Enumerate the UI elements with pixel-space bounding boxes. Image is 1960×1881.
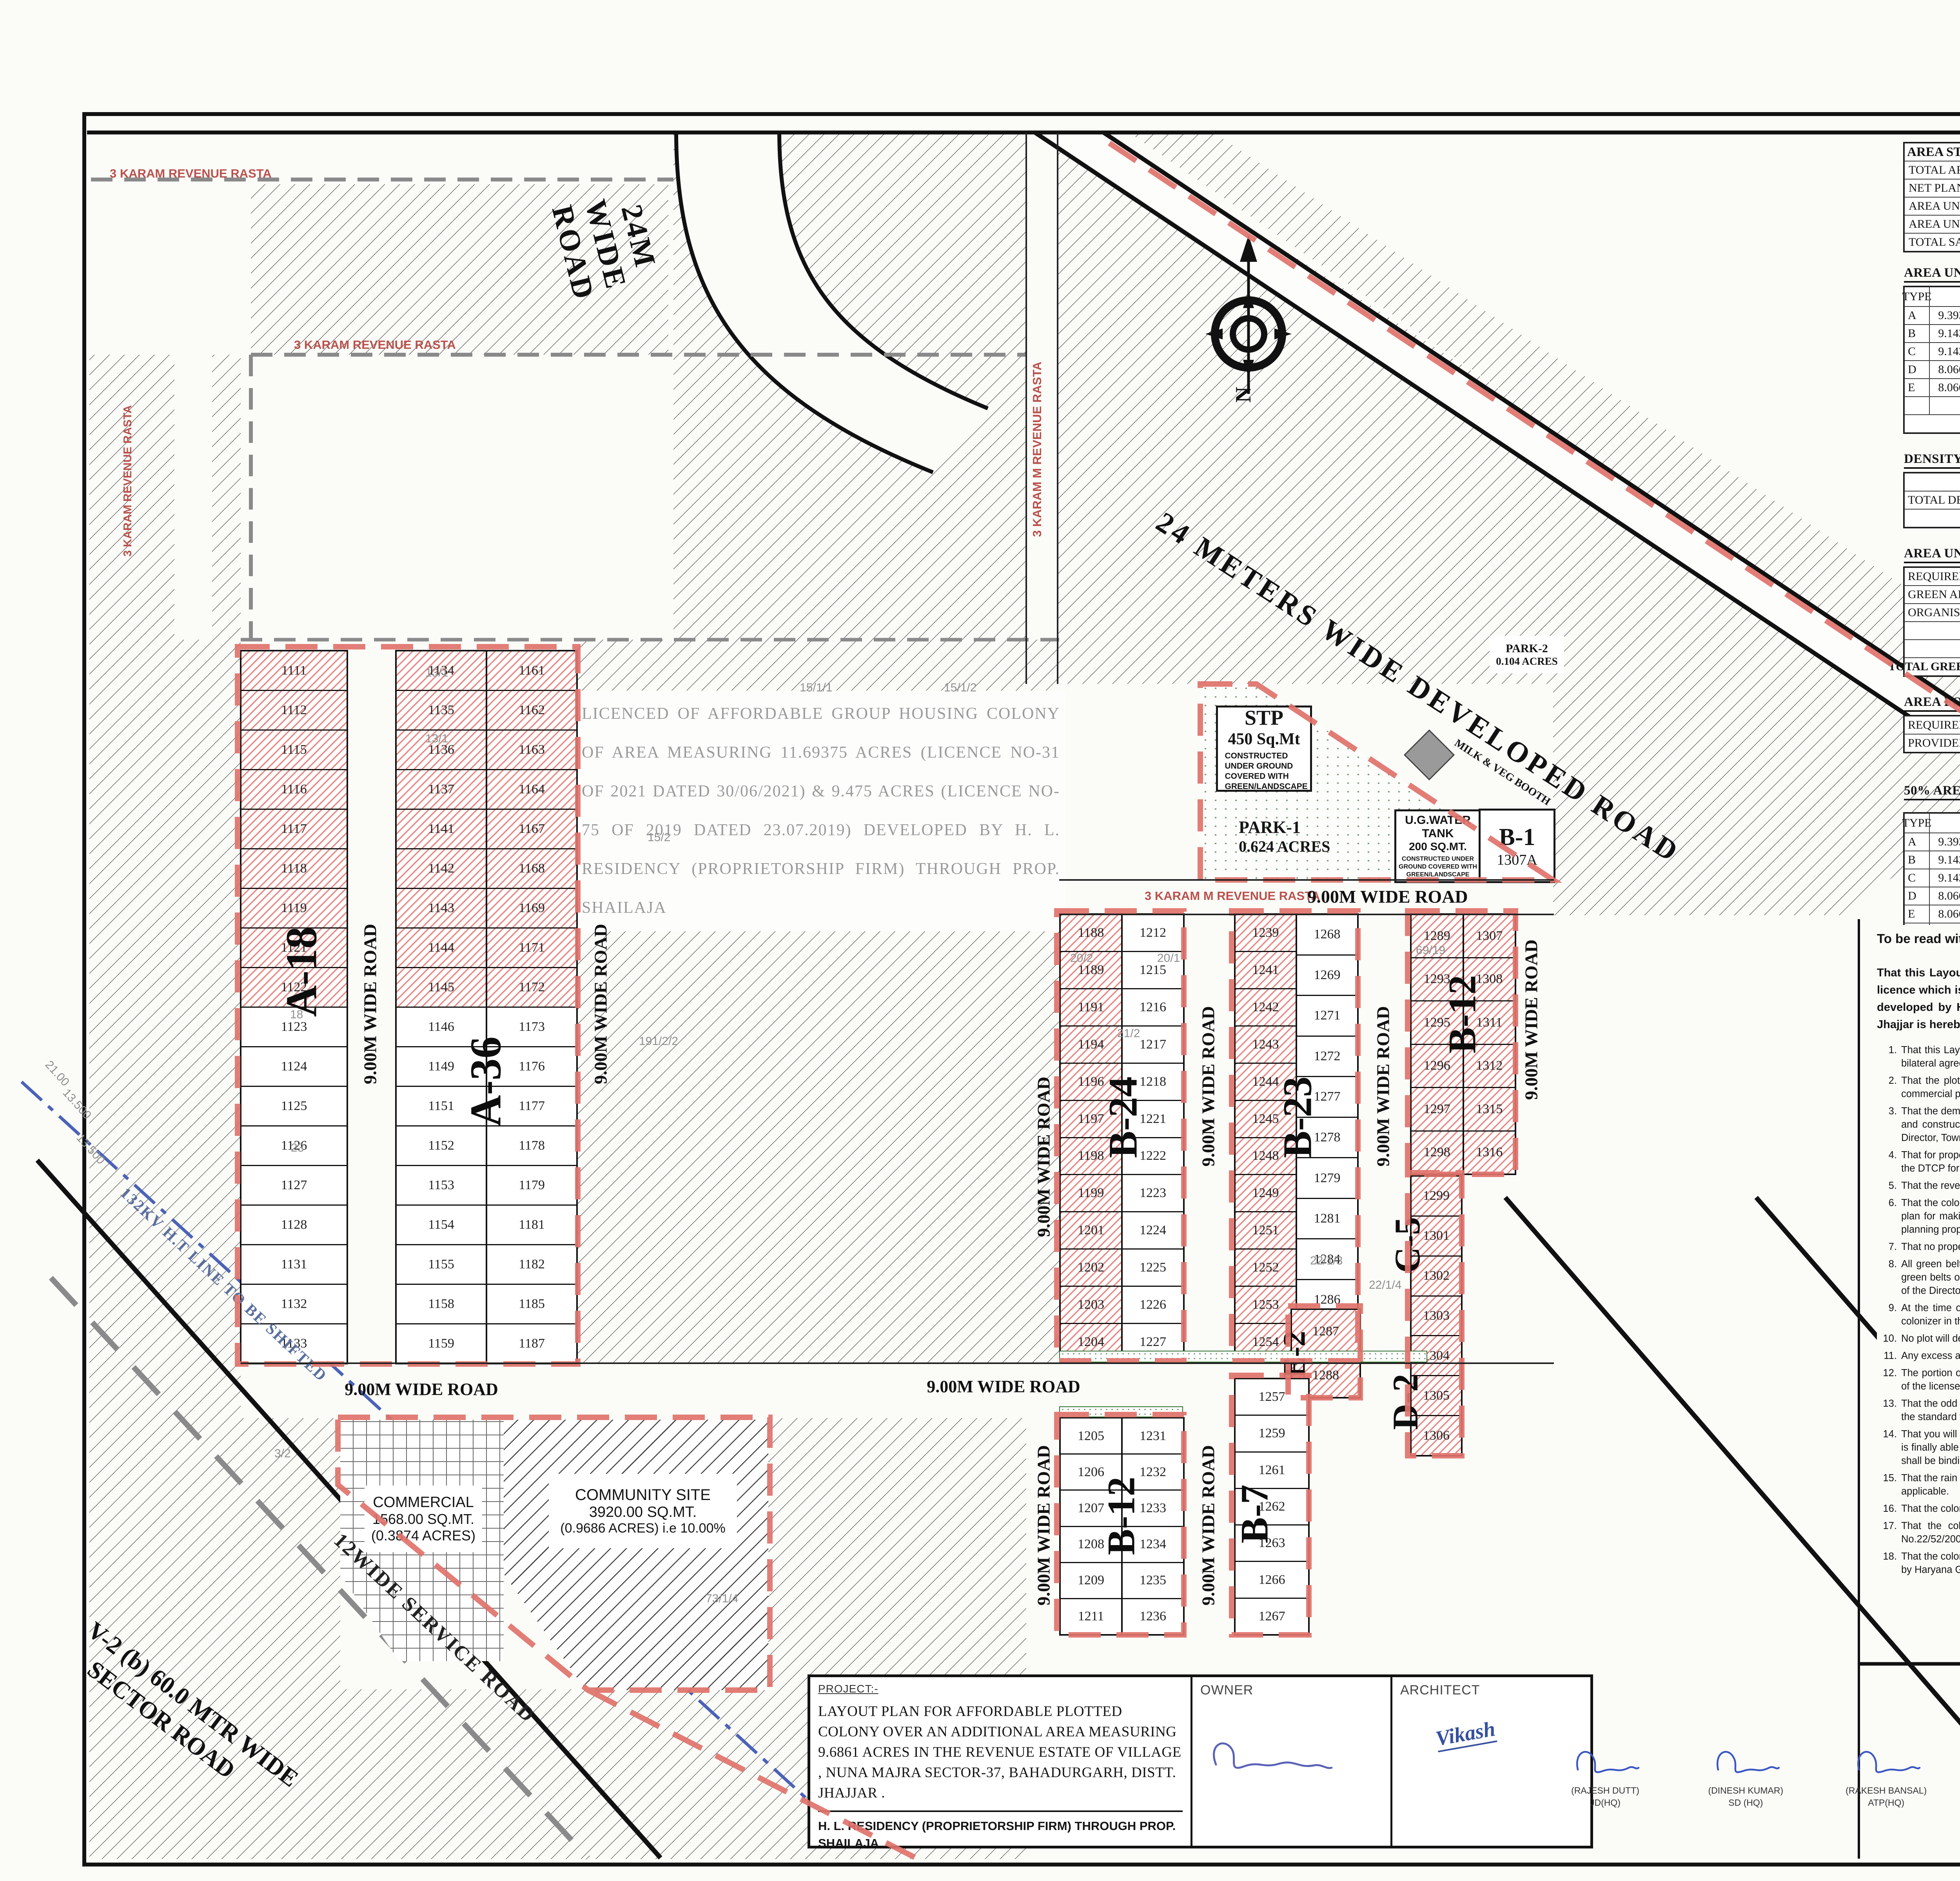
owner-section: OWNER: [1192, 1677, 1392, 1846]
stp-box: STP 450 Sq.Mt CONSTRUCTED UNDER GROUND C…: [1216, 706, 1312, 792]
survey-number: 13/1: [425, 732, 448, 746]
signatory-name: (RAKESH BANSAL): [1822, 1785, 1951, 1796]
road-label-horizontal: 9.00M WIDE ROAD: [1298, 886, 1478, 907]
plot-1116: 1116: [241, 770, 347, 810]
survey-number: 22/1/3: [1310, 1254, 1343, 1268]
road-label-horizontal: 9.00M WIDE ROAD: [331, 1379, 512, 1399]
plot-1279: 1279: [1297, 1158, 1357, 1199]
signatory-title: ATP(HQ): [1822, 1798, 1951, 1808]
block-label-d2: D-2: [1385, 1363, 1426, 1430]
signatory-title: SD (HQ): [1681, 1798, 1810, 1808]
plot-1124: 1124: [241, 1047, 347, 1087]
signatory: (DINESH KUMAR)SD (HQ): [1681, 1736, 1810, 1808]
condition-item: That the odd size plots are being approv…: [1900, 1397, 1960, 1424]
plot-1216: 1216: [1123, 989, 1183, 1027]
plot-1162: 1162: [487, 691, 576, 731]
plot-1202: 1202: [1061, 1250, 1121, 1287]
or-label: OR: [1904, 415, 1960, 433]
plot-1212: 1212: [1123, 915, 1183, 952]
density-title: DENSITY CALCULATION: [1904, 452, 1960, 469]
plot-1158: 1158: [397, 1285, 486, 1324]
compass-n-label: N: [1231, 387, 1256, 403]
community-site: [504, 1420, 768, 1690]
plot-1125: 1125: [241, 1087, 347, 1126]
table-cell: 9.143: [1929, 851, 1960, 869]
plot-1179: 1179: [487, 1166, 576, 1206]
block-label-a18: A-18: [277, 931, 327, 1017]
table-cell: 9.143: [1929, 343, 1960, 361]
plot-1268: 1268: [1297, 915, 1357, 956]
condition-item: That this Layout Plan shall be read in c…: [1900, 1043, 1960, 1070]
plot-1235: 1235: [1123, 1563, 1183, 1599]
project-section: PROJECT:- LAYOUT PLAN FOR AFFORDABLE PLO…: [810, 1677, 1192, 1846]
plot-1144: 1144: [397, 929, 486, 968]
plot-1154: 1154: [397, 1206, 486, 1245]
plot-1141: 1141: [397, 810, 486, 849]
area-under-plots-table: TYPE SIZE AREA TOTAL PLOTS TOTAL AREA A9…: [1903, 286, 1960, 434]
table-cell: TOTAL SALEBLE AREA: [1904, 233, 1960, 251]
block-label-c5: C-5: [1387, 1206, 1428, 1273]
plot-1118: 1118: [241, 849, 347, 889]
table-cell: 9.143: [1929, 325, 1960, 343]
table-cell: AREA UNDER PLOTS: [1904, 215, 1960, 233]
table-cell: NET PLANNED AREA FOR PLANNING: [1904, 179, 1960, 197]
table-cell: ORGANISED GREEN: [1904, 604, 1960, 622]
signature-squiggle: [1706, 1736, 1785, 1783]
title-block: PROJECT:- LAYOUT PLAN FOR AFFORDABLE PLO…: [808, 1674, 1593, 1848]
table-cell: AREA UNDER COMMERCIAL: [1904, 197, 1960, 215]
road-label-horizontal: 9.00M WIDE ROAD: [913, 1377, 1094, 1397]
table-cell: [1904, 640, 1960, 658]
plot-1163: 1163: [487, 731, 576, 770]
conditions-list: That this Layout Plan shall be read in c…: [1877, 1043, 1960, 1576]
block-label-b24: B-24: [1100, 1076, 1147, 1158]
signatories-row: (RAJESH DUTT)JD(HQ)(DINESH KUMAR)SD (HQ)…: [1541, 1736, 1960, 1808]
survey-number: 13.500: [74, 1132, 108, 1167]
plot-1315: 1315: [1464, 1088, 1515, 1132]
survey-number: 15/2: [648, 831, 670, 844]
rasta-label-left-vertical: 3 KARAM REVENUE RASTA: [122, 405, 134, 557]
block-label-a36: A-36: [461, 1041, 512, 1127]
table-cell: 8.066: [1929, 905, 1960, 923]
signatory: (RAKESH BANSAL)ATP(HQ): [1822, 1736, 1951, 1808]
signatory: (RAJESH DUTT)JD(HQ): [1541, 1736, 1670, 1808]
table-cell: A: [1904, 833, 1929, 851]
table-cell: A: [1904, 307, 1929, 325]
density-table: =142x18.00@ Person's per PlotTOTAL DENSI…: [1903, 472, 1960, 528]
survey-number: 20/1: [1157, 952, 1180, 965]
plot-1187: 1187: [487, 1324, 576, 1363]
table-cell: [1929, 397, 1960, 415]
signatory-name: (DINESH KUMAR): [1681, 1785, 1810, 1796]
road-label-vertical: 9.00M WIDE ROAD: [1198, 1428, 1219, 1623]
green-strip: [1059, 1406, 1183, 1417]
stp-area: 450 Sq.Mt: [1228, 730, 1300, 749]
community-title: AREA FOR PROVISION OF COMMUNITY FACILITI…: [1904, 695, 1960, 712]
plot-1243: 1243: [1236, 1027, 1296, 1064]
green-title: AREA UNDER GREEN: [1904, 546, 1960, 563]
survey-number: 15/1/2: [944, 681, 976, 695]
condition-item: That the colonizer/owner shall strictly …: [1900, 1550, 1960, 1576]
plot-1128: 1128: [241, 1206, 347, 1245]
milk-veg-booth-shape: [1404, 729, 1455, 780]
table-cell: 8.066: [1929, 361, 1960, 379]
plot-1211: 1211: [1061, 1599, 1121, 1634]
plot-1303: 1303: [1412, 1297, 1461, 1337]
owner-label: OWNER: [1200, 1683, 1383, 1698]
plot-1257: 1257: [1236, 1379, 1308, 1416]
plot-1239: 1239: [1236, 915, 1296, 952]
signatory-title: JD(HQ): [1541, 1798, 1670, 1808]
table-cell: REQUIRED AREA: [1904, 716, 1960, 734]
survey-number: 21/2: [1117, 1027, 1140, 1040]
licence-notes: To be read with Licence No. 69. of 2021 …: [1877, 925, 1960, 1580]
block-a36: 1134113511361137114111421143114411451146…: [395, 650, 578, 1364]
plot-1131: 1131: [241, 1245, 347, 1285]
plot-1231: 1231: [1123, 1418, 1183, 1455]
survey-number: 73/1/4: [706, 1592, 738, 1605]
developer-text: H. L. RESIDENCY (PROPRIETORSHIP FIRM) TH…: [818, 1810, 1183, 1852]
plot-1112: 1112: [241, 691, 347, 731]
table-cell: TOTAL DENSITY: [1904, 491, 1960, 509]
community-table: REQUIRED AREA=0.9686Acres10.00%PROVIDED …: [1903, 715, 1960, 753]
table-cell: E: [1904, 379, 1929, 397]
road-24m-label: 24M WIDE ROAD: [537, 153, 675, 337]
survey-number: 21.00: [42, 1058, 72, 1089]
table-cell: D: [1904, 887, 1929, 905]
road-label-vertical: 9.00M WIDE ROAD: [1373, 989, 1394, 1184]
licence-line: To be read with Licence No. 69. of 2021 …: [1877, 925, 1960, 950]
plot-1178: 1178: [487, 1126, 576, 1166]
stp-label: STP: [1245, 706, 1283, 730]
plot-1252: 1252: [1236, 1250, 1296, 1287]
road-label-vertical: 9.00M WIDE ROAD: [1033, 1059, 1054, 1255]
plot-1297: 1297: [1412, 1088, 1463, 1132]
architect-signature: Vikash: [1434, 1716, 1497, 1752]
table-cell: 8.066: [1929, 887, 1960, 905]
plot-1155: 1155: [397, 1245, 486, 1285]
condition-item: That for proper planning and integration…: [1900, 1148, 1960, 1175]
signature-squiggle: [1566, 1736, 1644, 1783]
plot-1137: 1137: [397, 770, 486, 810]
plot-1153: 1153: [397, 1166, 486, 1206]
table-cell: [1904, 509, 1960, 527]
plot-1135: 1135: [397, 691, 486, 731]
layout-plan-sheet: AREA STATEMENT TOTAL AREA OF THE SCHEME=…: [0, 0, 1960, 1881]
condition-item: That the demarcation plans as per site o…: [1900, 1105, 1960, 1145]
plot-1272: 1272: [1297, 1037, 1357, 1077]
plot-1269: 1269: [1297, 956, 1357, 996]
freeze-title: 50% AREA FREEZE SHOWN THUS: [1904, 784, 1960, 800]
licence-watermark-text: LICENCED OF AFFORDABLE GROUP HOUSING COL…: [576, 691, 1065, 931]
community-label: COMMUNITY SITE 3920.00 SQ.MT. (0.9686 AC…: [549, 1474, 737, 1548]
commercial-label: COMMERCIAL 1568.00 SQ.MT. (0.3874 ACRES): [365, 1486, 482, 1552]
plot-1199: 1199: [1061, 1175, 1121, 1212]
condition-item: That the revenue rasta falling in the co…: [1900, 1179, 1960, 1192]
survey-number: 18: [290, 1008, 303, 1021]
owner-signature: [1200, 1721, 1341, 1792]
plot-1298: 1298: [1412, 1132, 1463, 1174]
table-cell: D: [1904, 361, 1929, 379]
condition-item: That the rain water harvesting system sh…: [1900, 1471, 1960, 1498]
table-cell: B: [1904, 851, 1929, 869]
road-label-vertical: 9.00M WIDE ROAD: [360, 906, 381, 1102]
table-cell: 8.066: [1929, 379, 1960, 397]
signature-squiggle: [1847, 1736, 1926, 1783]
plot-1225: 1225: [1123, 1250, 1183, 1287]
plot-1267: 1267: [1236, 1599, 1308, 1634]
rasta-label-2: 3 KARAM REVENUE RASTA: [294, 338, 456, 352]
rasta-label-top: 3 KARAM REVENUE RASTA: [110, 167, 272, 181]
plot-1145: 1145: [397, 968, 486, 1008]
survey-number: 191/2/2: [639, 1035, 678, 1048]
plot-1316: 1316: [1464, 1132, 1515, 1174]
plot-1119: 1119: [241, 889, 347, 929]
col-header: SIZE: [1929, 287, 1960, 307]
area-statement-title: AREA STATEMENT: [1904, 143, 1960, 161]
table-cell: E: [1904, 905, 1929, 923]
plot-1209: 1209: [1061, 1563, 1121, 1599]
plot-1194: 1194: [1061, 1027, 1121, 1064]
plot-1242: 1242: [1236, 989, 1296, 1027]
survey-number: 15/1/1: [800, 681, 832, 695]
survey-number: 20/2: [1070, 952, 1093, 965]
plot-1161: 1161: [487, 651, 576, 691]
plot-1205: 1205: [1061, 1418, 1121, 1455]
survey-number: 13/1: [425, 666, 448, 680]
park2-label: PARK-2 0.104 ACRES: [1490, 636, 1564, 673]
plot-1224: 1224: [1123, 1212, 1183, 1250]
plot-1169: 1169: [487, 889, 576, 929]
plot-1152: 1152: [397, 1126, 486, 1166]
total-green-label: TOTAL GREEN PROVIDED: [1904, 658, 1960, 676]
plot-1168: 1168: [487, 849, 576, 889]
survey-number: 23: [291, 1141, 304, 1155]
table-cell: [1904, 473, 1960, 491]
plot-1172: 1172: [487, 968, 576, 1008]
plot-1142: 1142: [397, 849, 486, 889]
plot-1266: 1266: [1236, 1562, 1308, 1598]
road-label-vertical: 9.00M WIDE ROAD: [1033, 1428, 1054, 1623]
road-label-vertical: 9.00M WIDE ROAD: [1198, 989, 1219, 1184]
plot-1188: 1188: [1061, 915, 1121, 952]
col-header: TYPE: [1904, 287, 1929, 307]
compass-icon: [1205, 235, 1292, 394]
survey-number: 3/2: [274, 1447, 291, 1460]
plot-1127: 1127: [241, 1166, 347, 1206]
col-header: SIZE: [1929, 813, 1960, 833]
block-label-e2: E-2: [1277, 1319, 1313, 1378]
green-provided-label: GREEN AREA PROVIDED: [1904, 586, 1960, 604]
signatory-name: (RAJESH DUTT): [1541, 1785, 1670, 1796]
plot-1259: 1259: [1236, 1416, 1308, 1452]
plot-1223: 1223: [1123, 1175, 1183, 1212]
col-header: TYPE: [1904, 813, 1929, 833]
plot-1115: 1115: [241, 731, 347, 770]
plot-1203: 1203: [1061, 1287, 1121, 1324]
rasta-m-label-horizontal: 3 KARAM M REVENUE RASTA: [1145, 889, 1320, 903]
condition-item: The portion of the sector/development pl…: [1900, 1366, 1960, 1393]
plot-1281: 1281: [1297, 1199, 1357, 1240]
plot-1167: 1167: [487, 810, 576, 849]
plot-1159: 1159: [397, 1324, 486, 1363]
block-label-b23: B-23: [1274, 1076, 1321, 1158]
table-cell: 9.393: [1929, 307, 1960, 325]
plot-1185: 1185: [487, 1285, 576, 1324]
plot-1201: 1201: [1061, 1212, 1121, 1250]
green-strip: [1059, 1351, 1427, 1362]
table-cell: B: [1904, 325, 1929, 343]
survey-number: 69/19: [1416, 944, 1445, 957]
plot-1241: 1241: [1236, 952, 1296, 989]
plot-b1-box: B-1 1307A: [1479, 809, 1555, 883]
table-cell: C: [1904, 869, 1929, 887]
statistics-panel: AREA STATEMENT TOTAL AREA OF THE SCHEME=…: [1903, 142, 1960, 960]
plot-1182: 1182: [487, 1245, 576, 1285]
plot-1164: 1164: [487, 770, 576, 810]
condition-item: No plot will derive an access from less …: [1900, 1332, 1960, 1345]
condition-item: That the colonizer shall abide by the di…: [1900, 1196, 1960, 1236]
survey-number: 13.500: [60, 1087, 94, 1122]
required-green-label: REQUIRED GREEN: [1904, 568, 1960, 586]
stp-note: CONSTRUCTED UNDER GROUND COVERED WITH GR…: [1225, 751, 1303, 792]
block-label-b7: B-7: [1232, 1473, 1277, 1544]
table-cell: C: [1904, 343, 1929, 361]
table-cell: PROVIDED AREA: [1904, 734, 1960, 752]
plot-1271: 1271: [1297, 996, 1357, 1037]
approval-paragraph: That this Layout plan for an area measur…: [1877, 963, 1960, 1033]
condition-item: That the colonizer/owner shall ensure th…: [1900, 1519, 1960, 1546]
project-text: LAYOUT PLAN FOR AFFORDABLE PLOTTED COLON…: [818, 1701, 1183, 1803]
sector-road-label: V-2 (b) 60.0 MTR WIDESECTOR ROAD: [62, 1615, 305, 1819]
area-statement-table: AREA STATEMENT TOTAL AREA OF THE SCHEME=…: [1903, 142, 1960, 252]
rasta-m-label-vertical: 3 KARAM M REVENUE RASTA: [1030, 362, 1044, 537]
block-label-b12u: B-12: [1440, 975, 1485, 1054]
block-label-b12l: B-12: [1099, 1477, 1144, 1555]
plot-1249: 1249: [1236, 1175, 1296, 1212]
area-under-plots-title: AREA UNDER PLOTS: [1904, 266, 1960, 283]
plot-1171: 1171: [487, 929, 576, 968]
condition-item: Any excess area over and above the permi…: [1900, 1349, 1960, 1362]
ug-water-tank-box: U.G.WATER TANK 200 SQ.MT. CONSTRUCTED UN…: [1394, 809, 1481, 883]
architect-label: ARCHITECT: [1400, 1683, 1583, 1698]
table-cell: 9.393: [1929, 833, 1960, 851]
condition-item: At the time of demarcation plan, if requ…: [1900, 1301, 1960, 1328]
road-label-vertical: 9.00M WIDE ROAD: [1521, 922, 1542, 1118]
plot-1253: 1253: [1236, 1287, 1296, 1324]
survey-number: 22/1/4: [1369, 1279, 1401, 1292]
plot-1181: 1181: [487, 1206, 576, 1245]
green-table: REQUIRED GREEN = 0.726 Acres 7.50% GREEN…: [1903, 566, 1960, 677]
plot-1143: 1143: [397, 889, 486, 929]
condition-item: That you will have no objection to the r…: [1900, 1428, 1960, 1467]
condition-item: That the plotted area of the colony shal…: [1900, 1074, 1960, 1101]
project-label: PROJECT:-: [818, 1683, 1183, 1695]
plot-1111: 1111: [241, 651, 347, 691]
table-cell: [1904, 622, 1960, 640]
table-cell: [1904, 397, 1929, 415]
plot-1191: 1191: [1061, 989, 1121, 1027]
plot-1307: 1307: [1464, 915, 1515, 958]
plot-1117: 1117: [241, 810, 347, 849]
condition-item: That the colonizer/owner shall use only …: [1900, 1502, 1960, 1515]
plot-1226: 1226: [1123, 1287, 1183, 1324]
park1-label: PARK-1 0.624 ACRES: [1239, 817, 1330, 856]
condition-item: All green belts provided in the layout p…: [1900, 1257, 1960, 1297]
condition-item: That no property/plot shall derive acces…: [1900, 1240, 1960, 1253]
table-cell: TOTAL AREA OF THE SCHEME: [1904, 161, 1960, 179]
table-cell: 9.143: [1929, 869, 1960, 887]
plot-1236: 1236: [1123, 1599, 1183, 1634]
road-label-vertical: 9.00M WIDE ROAD: [590, 906, 611, 1102]
plot-1251: 1251: [1236, 1212, 1296, 1250]
